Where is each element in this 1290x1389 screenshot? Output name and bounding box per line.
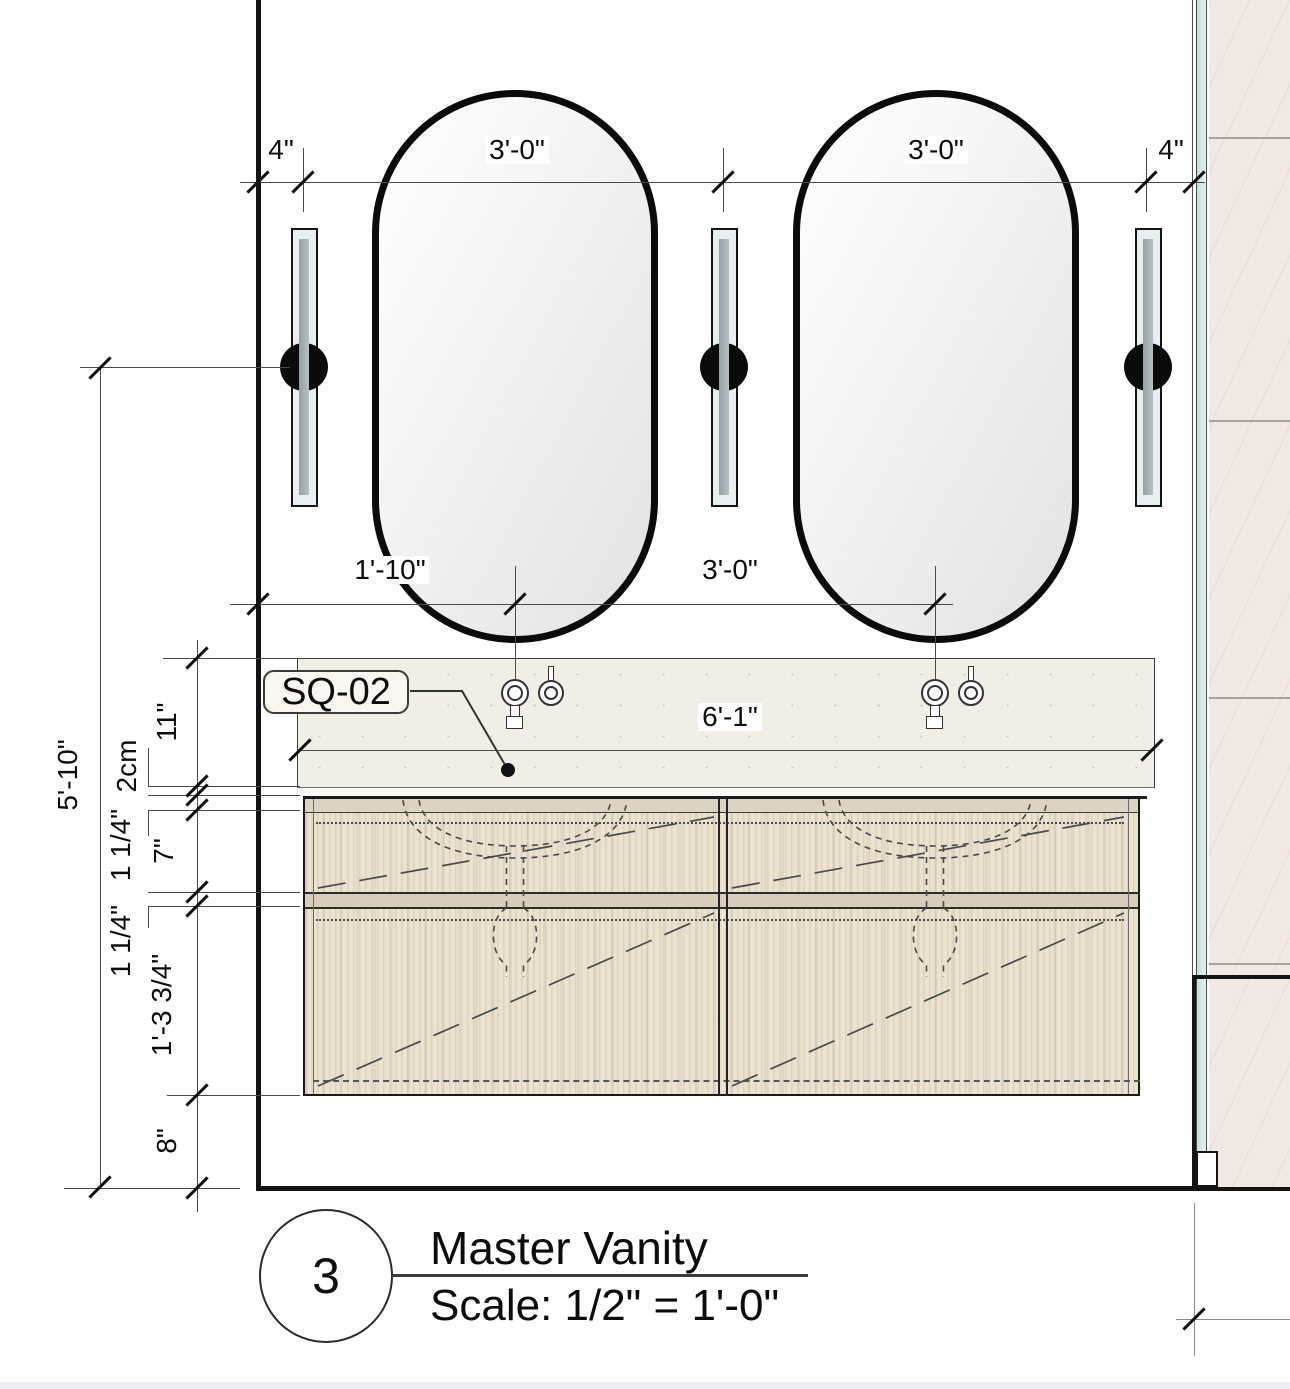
dim-label-top-offset-left: 4" [264, 136, 298, 164]
dim-label-mid-rail: 1 1/4" [107, 901, 135, 981]
dim-tie-line [148, 786, 300, 787]
tile-wall-lower [1209, 979, 1290, 1187]
detail-number: 3 [312, 1247, 340, 1305]
elevation-drawing-sheet: SQ-02 4" 3'-0" 3'-0" 4" 1'-10" 3'-0" 6'-… [0, 0, 1290, 1389]
dim-ext-line [935, 566, 936, 680]
dim-line-mid [230, 604, 953, 605]
faucet-handle-inner [964, 686, 978, 700]
wall-return-line [1192, 0, 1193, 977]
dim-line-chain [197, 640, 198, 1212]
finish-tag-label: SQ-02 [281, 671, 391, 714]
dim-label-counter-width: 6'-1" [698, 703, 762, 731]
dim-line-counter [297, 750, 1155, 751]
drawing-scale: Scale: 1/2" = 1'-0" [430, 1281, 779, 1331]
dim-tie-line [148, 810, 300, 811]
faucet-handle-inner [544, 686, 558, 700]
faucet-spout-inner [507, 685, 523, 701]
dim-label-wall-to-center: 1'-10" [350, 556, 429, 584]
dim-label-center-to-center: 3'-0" [698, 556, 762, 584]
ledge-line [1192, 975, 1290, 979]
dim-bracket [148, 748, 149, 786]
dim-tie-line [167, 1095, 300, 1096]
dim-label-mirror-right-width: 3'-0" [904, 136, 968, 164]
dim-label-backsplash-height: 11" [153, 698, 181, 745]
faucet-spout-cap [926, 716, 943, 729]
dim-bracket [148, 810, 149, 836]
baseboard [1196, 1151, 1218, 1187]
dim-label-overall-height: 5'-10" [54, 735, 82, 814]
mirror-right [793, 90, 1079, 643]
dim-label-top-offset-right: 4" [1154, 136, 1188, 164]
dim-label-mirror-left-width: 3'-0" [485, 136, 549, 164]
cabinet-center-stile [718, 797, 728, 1096]
dim-label-slab-thickness: 2cm [113, 736, 141, 797]
tile-joint [1209, 697, 1290, 699]
bottom-edge-strip [0, 1382, 1290, 1389]
sconce-lamp-bar [299, 239, 309, 495]
dim-label-top-drawer: 7" [150, 834, 178, 868]
tile-joint [1209, 137, 1290, 139]
dim-line-overall-height [100, 367, 101, 1188]
tile-joint [1209, 420, 1290, 422]
dim-tie-line [148, 795, 300, 796]
dim-ext-line [1194, 1203, 1195, 1356]
dim-tie-line [64, 1188, 240, 1189]
tile-wall-upper [1209, 0, 1290, 976]
cabinet-side-line-left [313, 799, 314, 1094]
dim-ext-line [515, 566, 516, 680]
dim-label-bottom-drawer: 1'-3 3/4" [148, 950, 176, 1060]
dim-label-top-rail: 1 1/4" [107, 805, 135, 885]
floor-line [256, 1186, 1290, 1191]
sconce-lamp-bar [1143, 239, 1153, 495]
faucet-spout-inner [927, 685, 943, 701]
detail-number-bubble: 3 [259, 1209, 393, 1343]
dim-tie-line [163, 658, 298, 659]
cabinet-side-line-right [1128, 799, 1129, 1094]
dim-label-toe-clearance: 8" [153, 1124, 181, 1158]
dim-tie-line [80, 367, 290, 368]
tile-joint [1209, 963, 1290, 965]
sconce-lamp-bar [719, 239, 729, 495]
dim-bracket [148, 906, 149, 928]
dim-tie-line [148, 892, 300, 893]
faucet-spout-cap [506, 716, 523, 729]
dim-tie-line [148, 906, 300, 907]
finish-tag-callout: SQ-02 [263, 670, 409, 714]
drawing-title: Master Vanity [430, 1221, 708, 1275]
